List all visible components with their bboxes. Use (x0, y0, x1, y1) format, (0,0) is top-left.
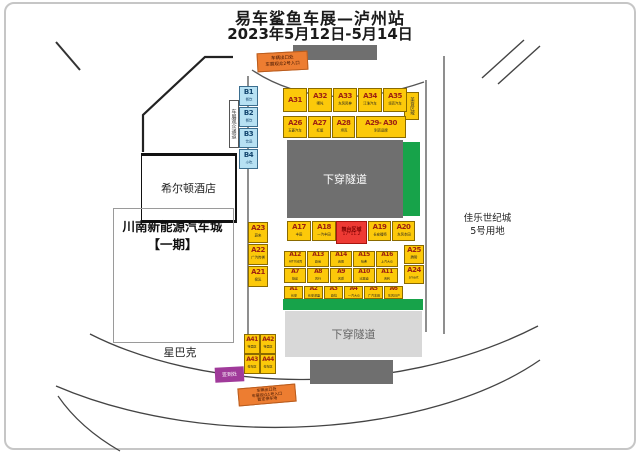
booth-code: A35 (388, 93, 402, 100)
gate-sign-north: 车辆出口处 车展观众2号入口 (257, 51, 309, 73)
booth-brand: 特卖区 (263, 345, 272, 348)
booth-B2: B2餐饮 (239, 107, 258, 127)
booth-brand: 长安福特 (373, 232, 386, 235)
booth-A35: A35领克汽车 (383, 88, 407, 112)
booth-A1: A1长安 (284, 286, 303, 299)
booth-code: A4 (350, 286, 358, 292)
booth-code: A20 (397, 224, 411, 231)
green-strip-vertical (403, 142, 420, 216)
booth-A12: A12AITO问界 (284, 251, 306, 267)
booth-A22: A22广汽传祺 (248, 244, 268, 265)
road-line (498, 46, 540, 84)
booth-A15: A15哈弗 (353, 251, 375, 267)
booth-code: B1 (244, 89, 253, 96)
visitor-walkway-sign: 车展观众通道 (229, 100, 239, 148)
booth-A10: A10比亚迪 (353, 268, 375, 283)
booth-brand: 长安 (290, 293, 296, 296)
booth-A42: A42特卖区 (260, 334, 276, 354)
booth-A24: A24smart (404, 265, 424, 284)
booth-code: A31 (288, 97, 302, 104)
booth-brand: 东风日产 (387, 293, 399, 296)
booth-code: A24 (407, 267, 421, 274)
road-line (56, 42, 80, 70)
booth-code: A21 (251, 269, 265, 276)
booth-A9: A9名爵 (330, 268, 352, 283)
jiale-line2: 5号用地 (450, 226, 525, 239)
booth-A6: A6东风日产 (384, 286, 403, 299)
booth-brand: 别克品牌 (374, 128, 387, 131)
booth-code: A1 (290, 286, 298, 292)
booth-A27: A27红旗 (308, 116, 331, 138)
underpass-tunnel-top: 下穿隧道 (287, 140, 403, 218)
booth-A4: A4一汽大众 (344, 286, 363, 299)
green-strip-horizontal (283, 299, 423, 310)
starbucks-label: 星巴克 (150, 344, 210, 360)
booth-brand: 哈弗 (361, 260, 367, 263)
booth-brand: 红旗 (316, 128, 323, 131)
booth-code: A29- A30 (365, 120, 397, 127)
booth-A14: A14启辰 (330, 251, 352, 267)
booth-code: A8 (314, 269, 322, 275)
building-outline (143, 57, 233, 152)
booth-code: A27 (313, 120, 327, 127)
booth-brand: AITO问界 (288, 260, 301, 263)
booth-B1: B1餐饮 (239, 86, 258, 106)
booth-brand: 一汽丰田 (317, 232, 330, 235)
jiale-line1: 佳乐世纪城 (450, 213, 525, 226)
booth-brand: 东风风神 (338, 101, 351, 104)
booth-brand: 长安深蓝 (307, 293, 319, 296)
road-corner-arc (58, 396, 120, 451)
booth-A13: A13欧尚 (307, 251, 329, 267)
booth-brand: smart (409, 276, 419, 279)
booth-code: A10 (358, 269, 370, 275)
booth-brand: 坦克 (340, 128, 347, 131)
stage-size: 17*11.2 (343, 233, 361, 238)
booth-code: B2 (244, 110, 253, 117)
booth-code: A18 (317, 224, 331, 231)
auto-city-label: 川南新能源汽车城 【一期】 (110, 218, 235, 253)
auto-city-line2: 【一期】 (110, 236, 235, 254)
booth-brand: 上汽大众 (381, 260, 393, 263)
booth-brand: 名爵 (338, 276, 344, 279)
booth-brand: 江淮汽车 (363, 101, 376, 104)
booth-A32: A32哪吒 (308, 88, 332, 112)
booth-brand: 蔚来 (255, 234, 262, 237)
booth-A25: A25腾势 (404, 245, 424, 264)
booth-brand: 吉利 (384, 276, 390, 279)
booth-brand: 饮品 (245, 139, 252, 142)
gate-bottom-line3: 暂定停车场 (257, 396, 277, 402)
booth-A21: A21极氪 (248, 266, 268, 287)
booth-code: A15 (358, 252, 370, 258)
booth-brand: 腾势 (411, 256, 418, 259)
booth-code: A19 (373, 224, 387, 231)
booth-brand: 比亚迪 (359, 276, 368, 279)
booth-A7: A7捷途 (284, 268, 306, 283)
booth-brand: 领克汽车 (388, 101, 401, 104)
booth-code: A11 (381, 269, 393, 275)
booth-A17: A17丰田 (287, 221, 311, 241)
booth-B4: B4小吃 (239, 149, 258, 169)
booth-code: A6 (390, 286, 398, 292)
booth-brand: 停车区 (247, 365, 256, 368)
booth-A43: A43停车区 (244, 354, 260, 374)
booth-A44: A44停车区 (260, 354, 276, 374)
booth-A23: A23蔚来 (248, 222, 268, 243)
checkin-booth: 签到处 (215, 366, 245, 382)
venue-map: 易车鲨鱼车展—泸州站 2023年5月12日-5月14日 下穿隧道 下穿隧道 希尔… (0, 0, 640, 453)
booth-A3: A3欧拉 (324, 286, 343, 299)
booth-code: A41 (246, 337, 258, 343)
booth-A18: A18一汽丰田 (312, 221, 336, 241)
booth-A33: A33东风风神 (333, 88, 357, 112)
booth-brand: 欧尚 (315, 260, 321, 263)
booth-brand: 东风本田 (397, 232, 410, 235)
booth-code: A34 (363, 93, 377, 100)
booth-A26: A26五菱汽车 (283, 116, 307, 138)
booth-code: A2 (310, 286, 318, 292)
booth-code: A32 (313, 93, 327, 100)
booth-brand: 五菱汽车 (288, 128, 301, 131)
booth-code: A42 (262, 337, 274, 343)
booth-A8: A8风行 (307, 268, 329, 283)
booth-code: A23 (251, 225, 265, 232)
booth-code: A43 (246, 357, 258, 363)
booth-A41: A41特卖区 (244, 334, 260, 354)
booth-code: A14 (335, 252, 347, 258)
booth-code: A25 (407, 247, 421, 254)
booth-A31: A31 (283, 88, 307, 112)
auto-city-line1: 川南新能源汽车城 (110, 218, 235, 236)
booth-A34: A34江淮汽车 (358, 88, 382, 112)
booth-code: A17 (292, 224, 306, 231)
booth-code: B3 (244, 131, 253, 138)
booth-A29-A30: A29- A30别克品牌 (356, 116, 406, 138)
booth-brand: 风行 (315, 276, 321, 279)
booth-A28: A28坦克 (332, 116, 355, 138)
booth-A20: A20东风本田 (392, 221, 415, 241)
booth-brand: 特卖区 (247, 345, 256, 348)
booth-brand: 启辰 (338, 260, 344, 263)
booth-brand: 餐饮 (245, 118, 252, 121)
booth-code: A28 (337, 120, 351, 127)
underpass-tunnel-bottom: 下穿隧道 (285, 311, 422, 357)
booth-brand: 停车区 (263, 365, 272, 368)
booth-A19: A19长安福特 (368, 221, 391, 241)
booth-brand: 欧拉 (330, 293, 336, 296)
booth-B3: B3饮品 (239, 128, 258, 148)
booth-code: B4 (244, 152, 253, 159)
booth-code: A44 (262, 357, 274, 363)
booth-code: A13 (312, 252, 324, 258)
booth-brand: 哪吒 (317, 101, 324, 104)
booth-A16: A16上汽大众 (376, 251, 398, 267)
booth-brand: 极氪 (255, 278, 262, 281)
booth-code: A5 (370, 286, 378, 292)
booth-brand: 捷途 (292, 276, 298, 279)
booth-code: A12 (289, 252, 301, 258)
booth-A5: A5广汽本田 (364, 286, 383, 299)
booth-brand: 餐饮 (245, 97, 252, 100)
booth-A11: A11吉利 (376, 268, 398, 283)
booth-brand: 广汽本田 (367, 293, 379, 296)
booth-brand: 小吃 (245, 160, 252, 163)
booth-brand: 广汽传祺 (251, 256, 264, 259)
stage-area: 舞台区域 17*11.2 (336, 221, 367, 244)
booth-code: A9 (337, 269, 345, 275)
gate-top-line2: 车展观众2号入口 (265, 61, 300, 68)
booth-code: A7 (291, 269, 299, 275)
road-curve-bottom-2 (56, 360, 540, 427)
booth-code: A3 (330, 286, 338, 292)
tunnel-entrance-bar-bottom (310, 360, 393, 384)
booth-code: A26 (288, 120, 302, 127)
jiale-century-city-label: 佳乐世纪城 5号用地 (450, 213, 525, 239)
booth-brand: 丰田 (296, 232, 303, 235)
booth-code: A16 (381, 252, 393, 258)
booth-code: A22 (251, 247, 265, 254)
road-line (482, 40, 524, 78)
booth-code: A33 (338, 93, 352, 100)
booth-A2: A2长安深蓝 (304, 286, 323, 299)
booth-brand: 一汽大众 (347, 293, 359, 296)
